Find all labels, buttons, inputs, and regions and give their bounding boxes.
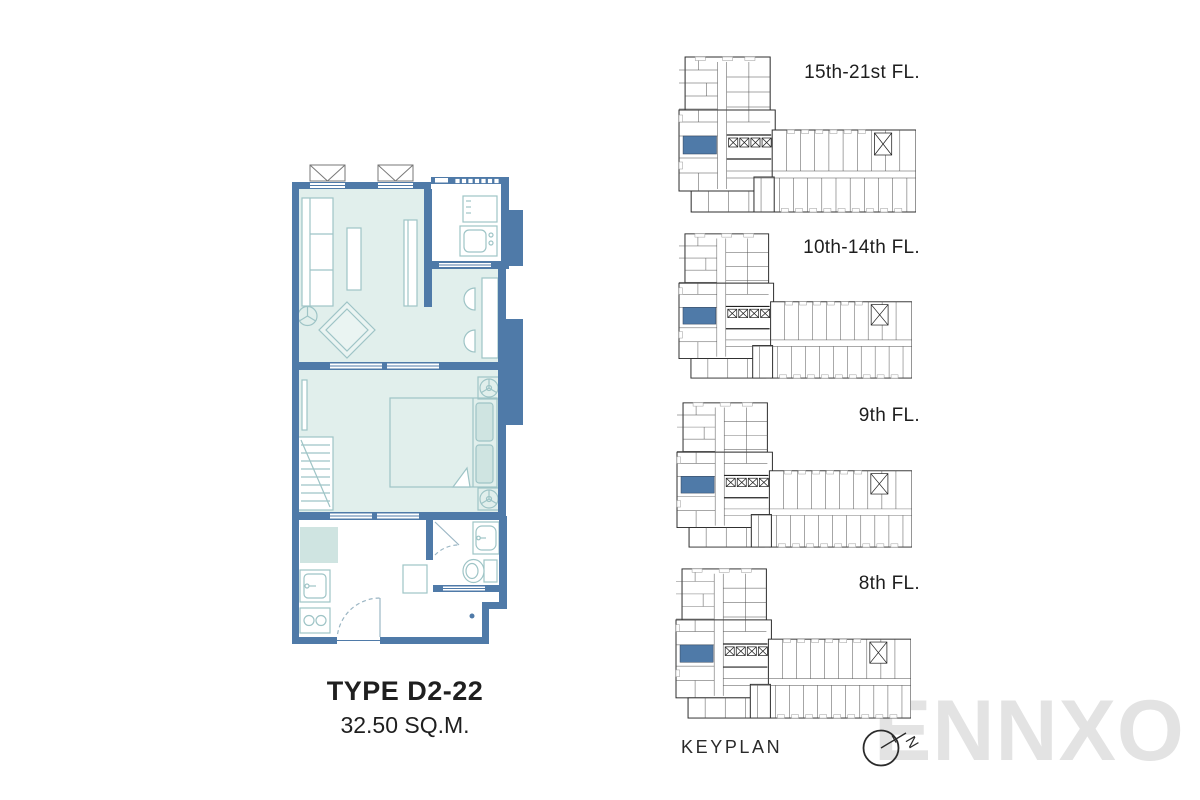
window-symbols xyxy=(310,165,413,181)
sofa xyxy=(302,198,333,306)
north-letter: N xyxy=(902,734,922,752)
keyplan-floor-label: 15th-21st FL. xyxy=(760,62,920,84)
floor-plan-sheet: ENNXO xyxy=(0,0,1200,800)
toilet-tank xyxy=(484,560,497,582)
entry-door xyxy=(337,598,380,641)
unit-floor-plan-drawing xyxy=(285,158,525,655)
keyplan-floor-label: 9th FL. xyxy=(760,405,920,427)
door-stopper xyxy=(470,614,475,619)
north-arrow-icon: N xyxy=(858,725,922,775)
tv-console xyxy=(404,220,417,306)
pillow xyxy=(476,403,493,441)
ac-ledge xyxy=(509,210,523,266)
ac-unit xyxy=(463,196,497,222)
unit-title-block: TYPE D2-22 32.50 SQ.M. xyxy=(285,676,525,739)
wall-pier xyxy=(498,319,523,425)
keyplan-caption: KEYPLAN xyxy=(681,737,782,758)
vent-strip xyxy=(455,179,499,184)
unit-area-label: 32.50 SQ.M. xyxy=(285,712,525,739)
shoe-cabinet xyxy=(403,565,427,593)
keyplan-floor-label: 8th FL. xyxy=(760,573,920,595)
pillow xyxy=(476,445,493,483)
dining-table xyxy=(482,278,498,358)
unit-type-title: TYPE D2-22 xyxy=(285,676,525,707)
coffee-table xyxy=(347,228,361,290)
keyplan-floor-label: 10th-14th FL. xyxy=(760,237,920,259)
mirror xyxy=(302,380,307,430)
kitchen-mat xyxy=(300,527,338,563)
